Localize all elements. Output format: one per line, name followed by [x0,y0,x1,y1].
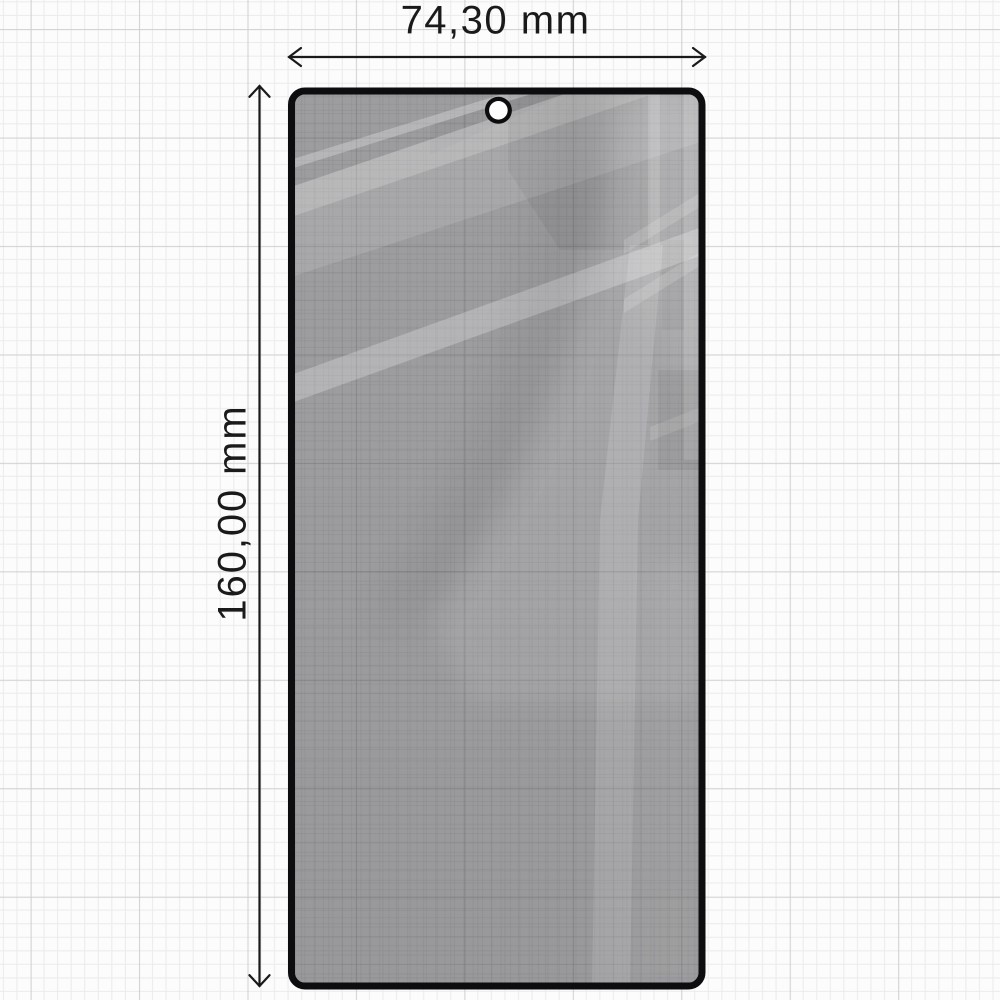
svg-text:74,30 mm: 74,30 mm [401,0,591,43]
svg-text:160,00 mm: 160,00 mm [211,404,255,621]
